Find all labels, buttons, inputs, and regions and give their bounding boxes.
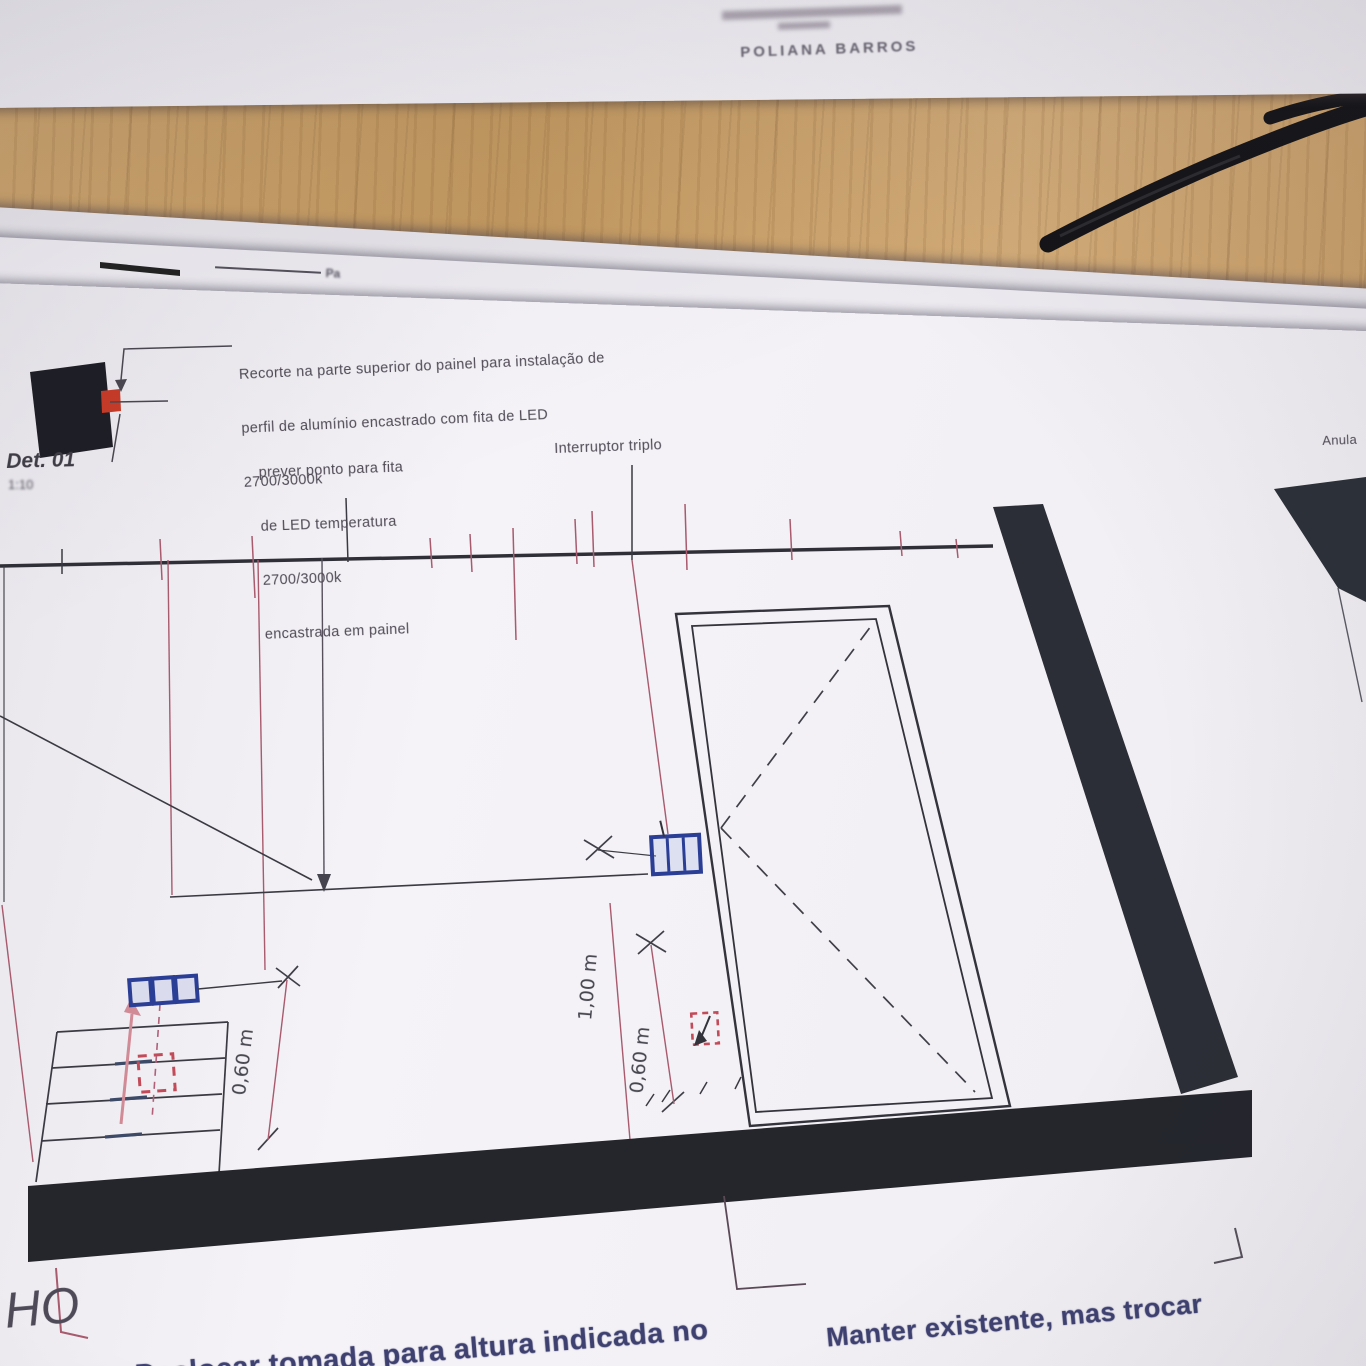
note-anular: Anula (1322, 432, 1357, 449)
dimension-lines (268, 903, 674, 1140)
note-line: 2700/3000k (263, 567, 408, 591)
note-line: encastrada em painel (265, 621, 410, 645)
led-strip-marker (101, 389, 121, 413)
margin-fragment-text: HO (2, 1275, 82, 1339)
center-socket-symbol (691, 1012, 719, 1046)
top-sheet (0, 0, 1366, 108)
note-line: Manter existente, mas trocar (825, 1285, 1204, 1356)
door-bottom-ticks (646, 1077, 741, 1106)
socket-dim-connector (198, 981, 282, 989)
note-line: prever ponto para fita (258, 459, 403, 483)
door-elevation (676, 606, 1010, 1126)
right-wall-section (993, 504, 1238, 1094)
adjacent-detail-fragment (1274, 477, 1366, 702)
note-line: Recorte na parte superior do painel para… (239, 350, 605, 385)
triple-switch-symbol (650, 819, 701, 874)
note-interruptor: Interruptor triplo (554, 437, 662, 459)
detail-01-panel-section (30, 346, 232, 462)
drawing-linework (0, 0, 1366, 1366)
note-line: de LED temperatura (260, 513, 405, 537)
detail-01-scale: 1:10 (8, 477, 33, 492)
triple-socket-symbol (129, 976, 198, 1006)
note-line: Deslocar tomada para altura indicada no (134, 1311, 714, 1366)
door-swing-dashes (721, 622, 975, 1092)
note-prever: prever ponto para fita de LED temperatur… (257, 423, 411, 680)
detail-01-label: Det. 01 (6, 448, 75, 474)
vanity-cabinet (36, 1022, 228, 1182)
photo-of-architectural-drawing: Pa (0, 0, 1366, 1366)
